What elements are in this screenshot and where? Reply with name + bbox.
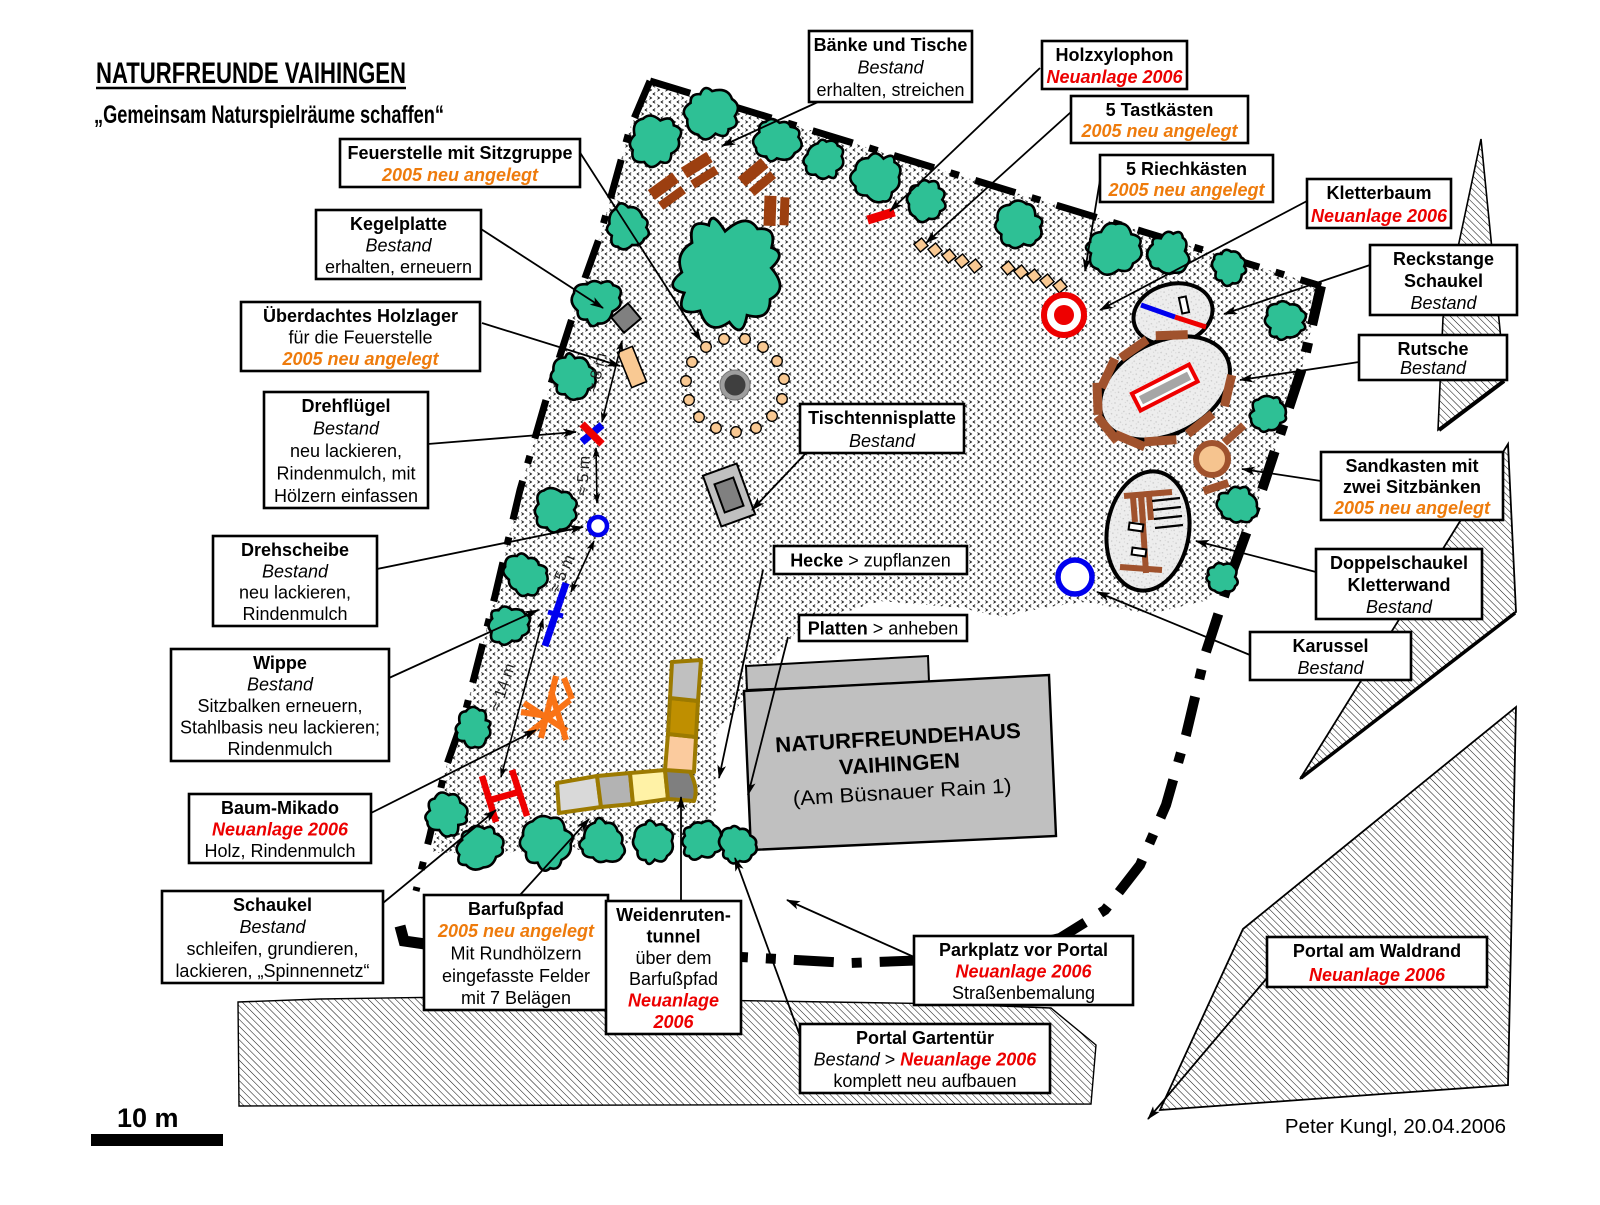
svg-text:Hecke > zupflanzen: Hecke > zupflanzen [790,551,951,571]
svg-text:10 m: 10 m [117,1103,179,1133]
svg-text:Parkplatz vor PortalNeuanlage: Parkplatz vor PortalNeuanlage 2006Straße… [939,940,1108,1003]
svg-text:„Gemeinsam Naturspielräume sch: „Gemeinsam Naturspielräume schaffen“ [94,101,444,129]
svg-text:Platten > anheben: Platten > anheben [808,619,959,639]
svg-text:Sandkasten mitzwei Sitzbänken2: Sandkasten mitzwei Sitzbänken2005 neu an… [1333,456,1491,518]
svg-text:5 Riechkästen2005 neu angelegt: 5 Riechkästen2005 neu angelegt [1107,159,1265,200]
svg-text:Peter Kungl, 20.04.2006: Peter Kungl, 20.04.2006 [1285,1115,1506,1138]
svg-text:RutscheBestand: RutscheBestand [1397,339,1468,378]
svg-text:Überdachtes Holzlagerfür die F: Überdachtes Holzlagerfür die Feuerstelle… [263,306,458,369]
svg-text:DrehscheibeBestandneu lackiere: DrehscheibeBestandneu lackieren,Rindenmu… [239,540,351,624]
svg-text:NATURFREUNDE VAIHINGEN: NATURFREUNDE VAIHINGEN [96,57,406,90]
svg-text:Baum-MikadoNeuanlage 2006Holz,: Baum-MikadoNeuanlage 2006Holz, Rindenmul… [204,798,355,861]
svg-text:≈ 5 m: ≈ 5 m [574,455,594,496]
